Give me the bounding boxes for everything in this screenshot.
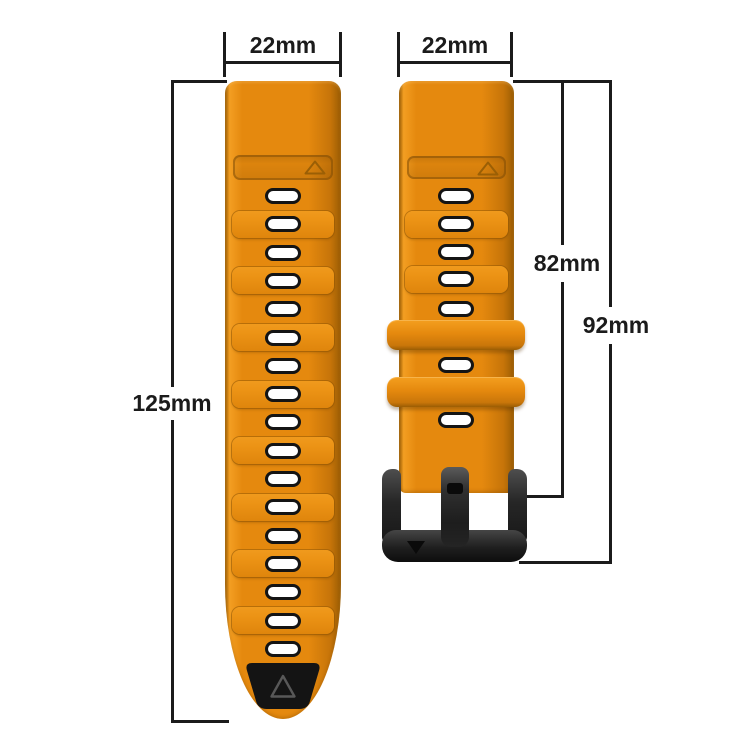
strap-pin-hole — [265, 471, 301, 487]
dimension-label-left-width: 22mm — [228, 33, 338, 57]
strap-pin-hole — [265, 273, 301, 289]
dimension-line — [561, 82, 564, 245]
dimension-line — [397, 61, 513, 64]
strap-pin-hole — [265, 188, 301, 204]
dimension-line — [609, 82, 612, 307]
dimension-extension-line — [519, 561, 612, 564]
strap-pin-hole — [438, 412, 474, 428]
strap-pin-hole — [438, 244, 474, 260]
adjustment-groove — [233, 155, 333, 180]
strap-pin-hole — [265, 556, 301, 572]
adjustment-groove — [407, 156, 506, 179]
keeper-loop — [387, 377, 525, 407]
dimension-line — [171, 80, 174, 387]
buckle-tongue — [441, 467, 469, 547]
dimension-extension-line — [171, 720, 229, 723]
dimension-extension-line — [171, 80, 227, 83]
dimension-label-82mm: 82mm — [512, 251, 622, 275]
dimension-tick — [223, 32, 226, 77]
dimension-label-right-width: 22mm — [400, 33, 510, 57]
strap-tip-cap — [245, 663, 321, 709]
triangle-up-outline-icon — [477, 161, 499, 176]
strap-pin-hole — [265, 499, 301, 515]
buckle-triangle-down-icon — [407, 541, 425, 554]
strap-pin-hole — [265, 584, 301, 600]
strap-pin-hole — [265, 443, 301, 459]
dimension-tick — [339, 32, 342, 77]
strap-pin-hole — [438, 271, 474, 287]
dimension-extension-line — [526, 495, 564, 498]
watch-strap-dimension-diagram: 22mm 22mm 125mm 82mm 92mm — [0, 0, 750, 750]
dimension-tick — [510, 32, 513, 77]
strap-pin-hole — [265, 414, 301, 430]
strap-pin-hole — [265, 613, 301, 629]
strap-pin-hole — [265, 330, 301, 346]
dimension-line — [609, 344, 612, 563]
dimension-line — [171, 420, 174, 722]
triangle-up-outline-icon — [304, 160, 326, 175]
dimension-line — [223, 61, 342, 64]
strap-pin-hole — [265, 358, 301, 374]
strap-pin-hole — [438, 188, 474, 204]
strap-pin-hole — [438, 357, 474, 373]
strap-pin-hole — [265, 301, 301, 317]
dimension-label-92mm: 92mm — [561, 313, 671, 337]
dimension-label-left-length: 125mm — [117, 391, 227, 415]
strap-pin-hole — [265, 386, 301, 402]
long-strap-piece — [225, 81, 341, 719]
strap-pin-hole — [265, 641, 301, 657]
strap-pin-hole — [265, 528, 301, 544]
strap-pin-hole — [265, 216, 301, 232]
strap-pin-hole — [438, 301, 474, 317]
strap-pin-hole — [438, 216, 474, 232]
buckle-strap-piece — [399, 81, 514, 493]
tongue-notch — [447, 483, 463, 494]
keeper-loop — [387, 320, 525, 350]
strap-pin-hole — [265, 245, 301, 261]
dimension-extension-line — [513, 80, 612, 83]
